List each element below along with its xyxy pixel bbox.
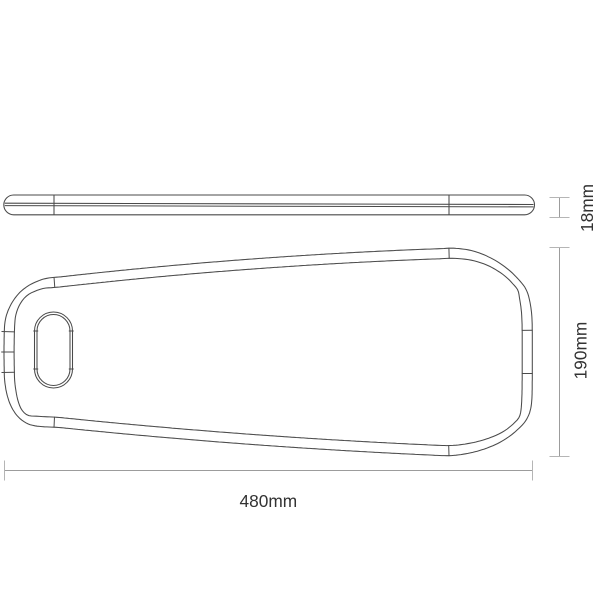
svg-text:190mm: 190mm [571,322,591,380]
svg-text:480mm: 480mm [239,491,297,511]
svg-text:18mm: 18mm [577,184,597,232]
